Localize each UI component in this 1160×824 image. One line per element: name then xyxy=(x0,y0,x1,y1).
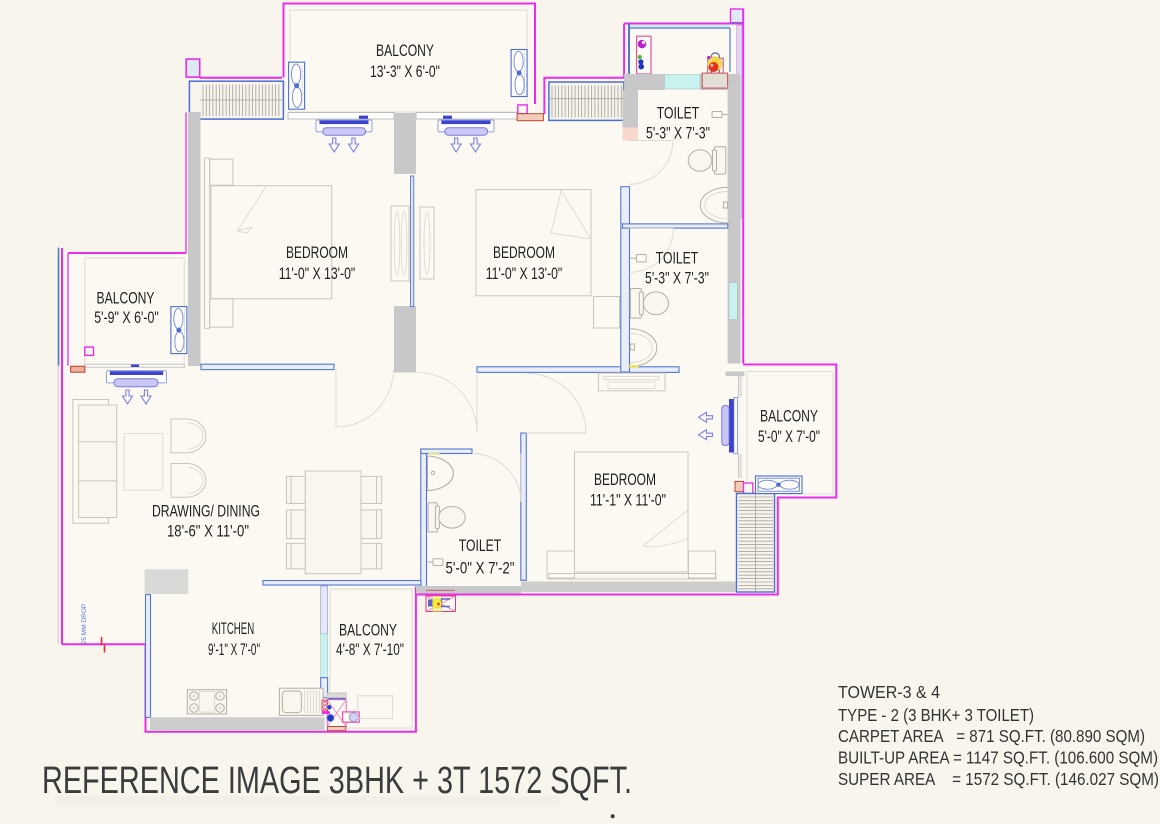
svg-text:TOILET: TOILET xyxy=(657,105,700,123)
svg-text:SUPER AREA = 1572 SQ.FT. (1: SUPER AREA = 1572 SQ.FT. (146.027 SQM) xyxy=(838,769,1159,789)
svg-text:REFERENCE IMAGE 3BHK + 3T 1572: REFERENCE IMAGE 3BHK + 3T 1572 SQFT. xyxy=(42,760,632,802)
svg-text:BALCONY: BALCONY xyxy=(339,621,397,639)
svg-text:11'-0" X 13'-0": 11'-0" X 13'-0" xyxy=(279,265,356,283)
svg-text:BEDROOM: BEDROOM xyxy=(594,471,656,489)
svg-text:BALCONY: BALCONY xyxy=(760,408,818,426)
svg-text:DRAWING/ DINING: DRAWING/ DINING xyxy=(152,502,260,520)
svg-text:5'-0" X 7'-0": 5'-0" X 7'-0" xyxy=(758,428,820,446)
svg-text:5'-3" X 7'-3": 5'-3" X 7'-3" xyxy=(646,124,710,142)
svg-text:BEDROOM: BEDROOM xyxy=(493,244,555,262)
svg-text:BEDROOM: BEDROOM xyxy=(286,244,348,262)
svg-text:TOWER-3 & 4: TOWER-3 & 4 xyxy=(838,682,940,702)
svg-text:4'-8" X 7'-10": 4'-8" X 7'-10" xyxy=(336,641,404,659)
svg-text:9'-1" X 7'-0": 9'-1" X 7'-0" xyxy=(208,641,260,659)
svg-text:5'-3" X 7'-3": 5'-3" X 7'-3" xyxy=(645,270,709,288)
svg-text:CARPET AREA = 871 SQ.FT. (80: CARPET AREA = 871 SQ.FT. (80.890 SQM) xyxy=(838,726,1145,746)
svg-text:25 MM DROP: 25 MM DROP xyxy=(81,604,88,644)
svg-text:BALCONY: BALCONY xyxy=(376,42,434,60)
svg-text:13'-3" X 6'-0": 13'-3" X 6'-0" xyxy=(370,63,440,81)
svg-text:BUILT-UP AREA = 1147 SQ.FT. (1: BUILT-UP AREA = 1147 SQ.FT. (106.600 SQM… xyxy=(838,748,1158,768)
svg-text:TOILET: TOILET xyxy=(656,250,699,268)
svg-text:TOILET: TOILET xyxy=(459,537,502,555)
svg-text:11'-1" X 11'-0": 11'-1" X 11'-0" xyxy=(590,491,666,509)
svg-text:KITCHEN: KITCHEN xyxy=(212,620,255,638)
svg-text:5'-0" X 7'-2": 5'-0" X 7'-2" xyxy=(446,559,515,577)
svg-text:BALCONY: BALCONY xyxy=(97,289,155,307)
svg-text:TYPE - 2 (3 BHK+ 3 TOILET): TYPE - 2 (3 BHK+ 3 TOILET) xyxy=(838,705,1034,725)
svg-text:11'-0" X 13'-0": 11'-0" X 13'-0" xyxy=(486,265,563,283)
svg-text:18'-6" X 11'-0": 18'-6" X 11'-0" xyxy=(167,522,249,540)
svg-text:5'-9" X 6'-0": 5'-9" X 6'-0" xyxy=(94,309,159,327)
